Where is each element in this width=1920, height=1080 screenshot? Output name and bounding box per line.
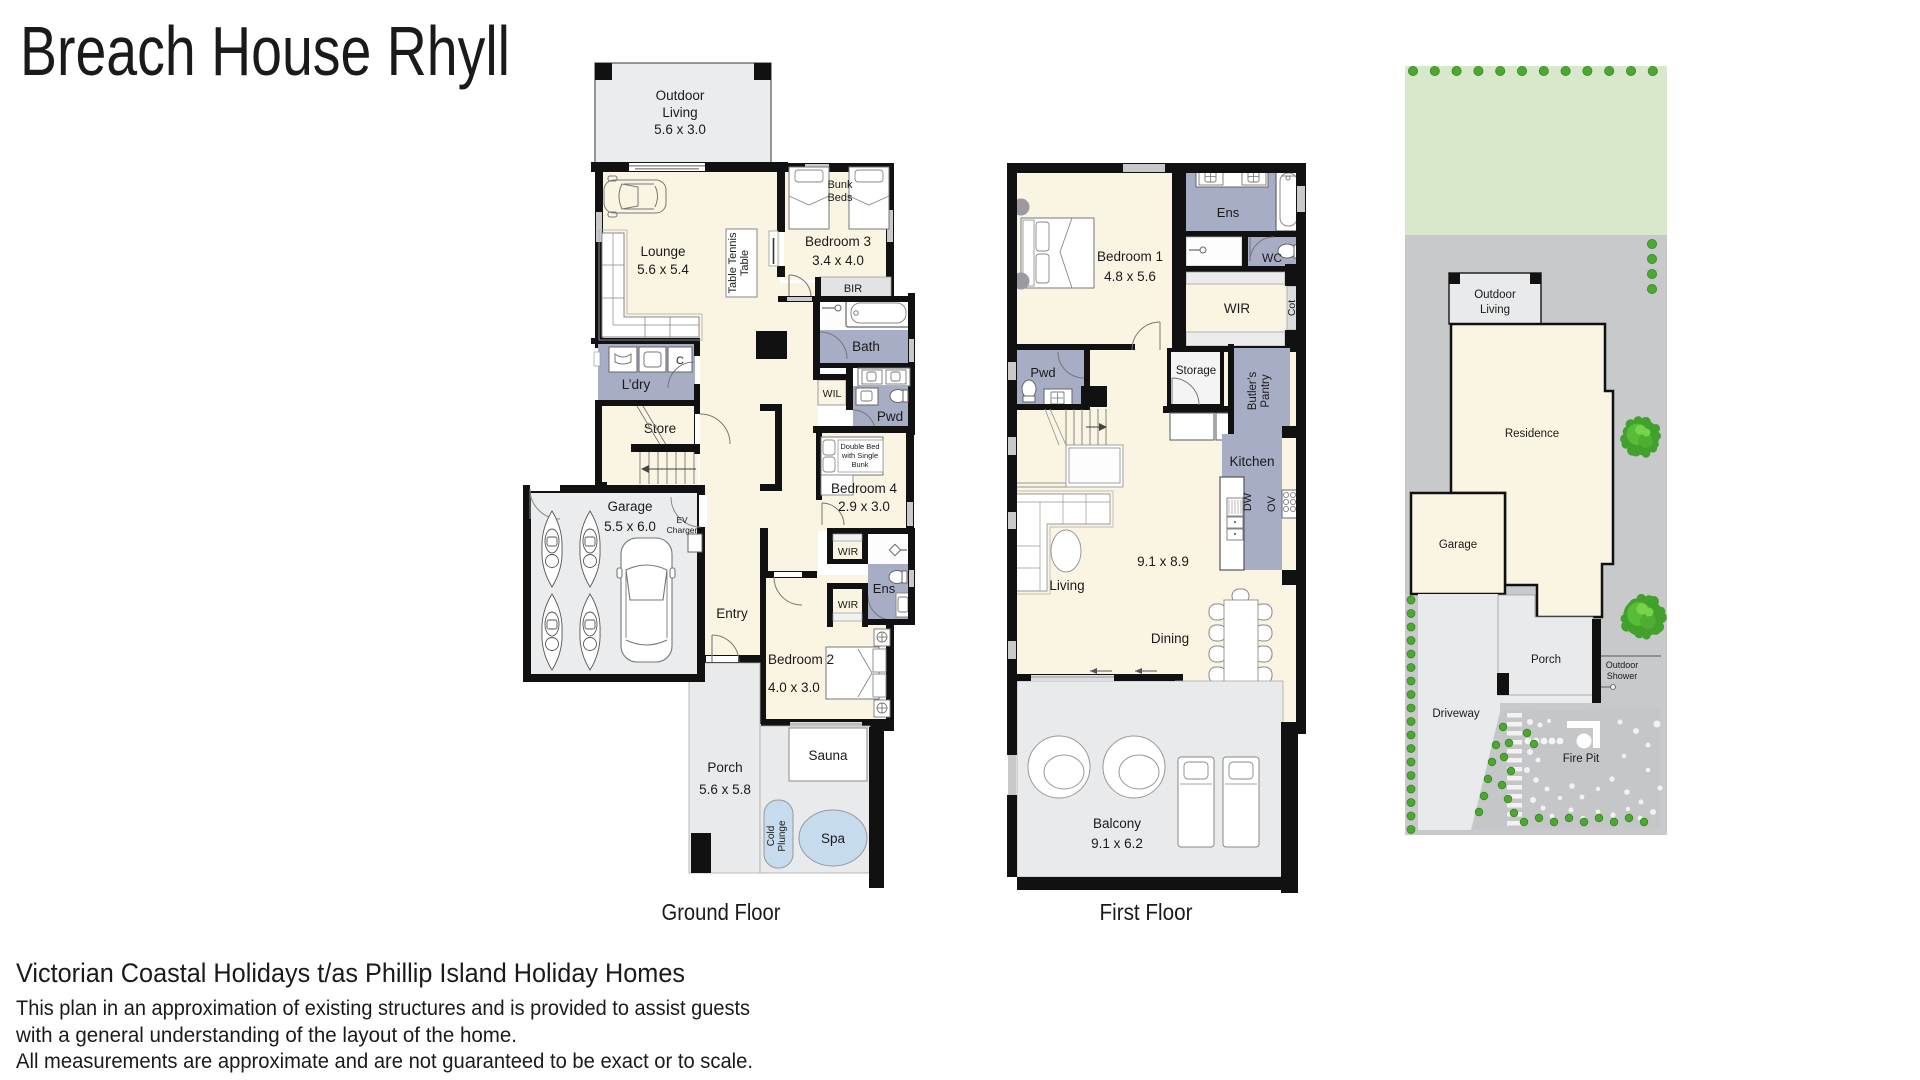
svg-text:Bedroom 1: Bedroom 1: [1097, 249, 1163, 264]
svg-text:Living: Living: [662, 105, 697, 120]
svg-text:Sauna: Sauna: [808, 748, 848, 763]
svg-text:L’dry: L’dry: [622, 377, 651, 392]
svg-text:5.5 x 6.0: 5.5 x 6.0: [604, 519, 656, 534]
svg-text:EV: EV: [676, 515, 688, 525]
svg-text:Driveway: Driveway: [1432, 708, 1480, 720]
svg-text:Garage: Garage: [1439, 539, 1477, 551]
svg-text:Residence: Residence: [1505, 428, 1559, 440]
svg-text:C: C: [676, 355, 684, 367]
svg-text:Charger: Charger: [667, 525, 698, 535]
svg-text:Double Bed: Double Bed: [840, 442, 879, 451]
svg-text:9.1 x 6.2: 9.1 x 6.2: [1091, 836, 1143, 851]
svg-text:Bath: Bath: [852, 339, 880, 354]
svg-text:with Single: with Single: [841, 451, 878, 460]
svg-text:Fire Pit: Fire Pit: [1563, 753, 1600, 765]
svg-text:4.8 x 5.6: 4.8 x 5.6: [1104, 269, 1156, 284]
svg-text:DW: DW: [1242, 492, 1254, 511]
svg-text:Bunk: Bunk: [827, 179, 853, 191]
svg-text:Bedroom 4: Bedroom 4: [831, 481, 898, 496]
svg-text:Bedroom 3: Bedroom 3: [805, 234, 871, 249]
svg-text:Porch: Porch: [707, 760, 742, 775]
svg-text:Beds: Beds: [827, 192, 853, 204]
svg-text:WIR: WIR: [1224, 301, 1250, 316]
svg-text:Pwd: Pwd: [1030, 365, 1055, 380]
svg-text:Living: Living: [1049, 578, 1084, 593]
svg-text:Shower: Shower: [1607, 671, 1638, 681]
svg-text:9.1 x 8.9: 9.1 x 8.9: [1137, 554, 1189, 569]
svg-text:5.6 x 5.8: 5.6 x 5.8: [699, 782, 751, 797]
svg-text:First Floor: First Floor: [1100, 899, 1193, 925]
svg-text:Pwd: Pwd: [877, 409, 903, 424]
svg-text:Ens: Ens: [1217, 205, 1240, 220]
svg-text:WIR: WIR: [838, 599, 859, 611]
svg-text:Breach House Rhyll: Breach House Rhyll: [20, 12, 510, 90]
svg-text:Storage: Storage: [1176, 365, 1216, 377]
svg-text:WIR: WIR: [838, 546, 859, 558]
svg-text:Ground Floor: Ground Floor: [662, 899, 781, 925]
svg-text:Garage: Garage: [607, 499, 652, 514]
svg-text:5.6 x 5.4: 5.6 x 5.4: [637, 262, 689, 277]
svg-text:2.9 x 3.0: 2.9 x 3.0: [838, 499, 890, 514]
svg-text:Kitchen: Kitchen: [1229, 454, 1274, 469]
svg-text:Spa: Spa: [821, 831, 846, 846]
svg-text:WIL: WIL: [823, 388, 842, 400]
svg-text:Victorian Coastal Holidays t/a: Victorian Coastal Holidays t/as Phillip …: [16, 958, 685, 988]
svg-text:Bunk: Bunk: [851, 460, 868, 469]
svg-text:WC: WC: [1262, 251, 1282, 265]
svg-text:Entry: Entry: [716, 606, 748, 621]
svg-text:Dining: Dining: [1151, 631, 1189, 646]
svg-text:Bedroom 2: Bedroom 2: [768, 652, 834, 667]
svg-text:Outdoor: Outdoor: [656, 88, 705, 103]
svg-text:3.4 x 4.0: 3.4 x 4.0: [812, 253, 864, 268]
svg-text:Outdoor: Outdoor: [1606, 660, 1639, 670]
svg-text:BIR: BIR: [844, 283, 862, 295]
svg-text:4.0 x 3.0: 4.0 x 3.0: [768, 680, 820, 695]
svg-text:Balcony: Balcony: [1093, 816, 1141, 831]
svg-text:All measurements are approxima: All measurements are approximate and are…: [16, 1049, 753, 1073]
svg-text:This plan in an approximation: This plan in an approximation of existin…: [16, 996, 750, 1020]
svg-text:Lounge: Lounge: [640, 244, 685, 259]
svg-text:Porch: Porch: [1531, 654, 1561, 666]
svg-text:Ens: Ens: [873, 581, 896, 596]
svg-text:with a general understanding o: with a general understanding of the layo…: [15, 1023, 517, 1047]
svg-text:Outdoor: Outdoor: [1474, 289, 1516, 301]
svg-text:5.6 x 3.0: 5.6 x 3.0: [654, 122, 706, 137]
svg-text:OV: OV: [1266, 495, 1278, 512]
svg-text:Butler’sPantry: Butler’sPantry: [1247, 371, 1272, 410]
svg-text:Living: Living: [1480, 304, 1510, 316]
